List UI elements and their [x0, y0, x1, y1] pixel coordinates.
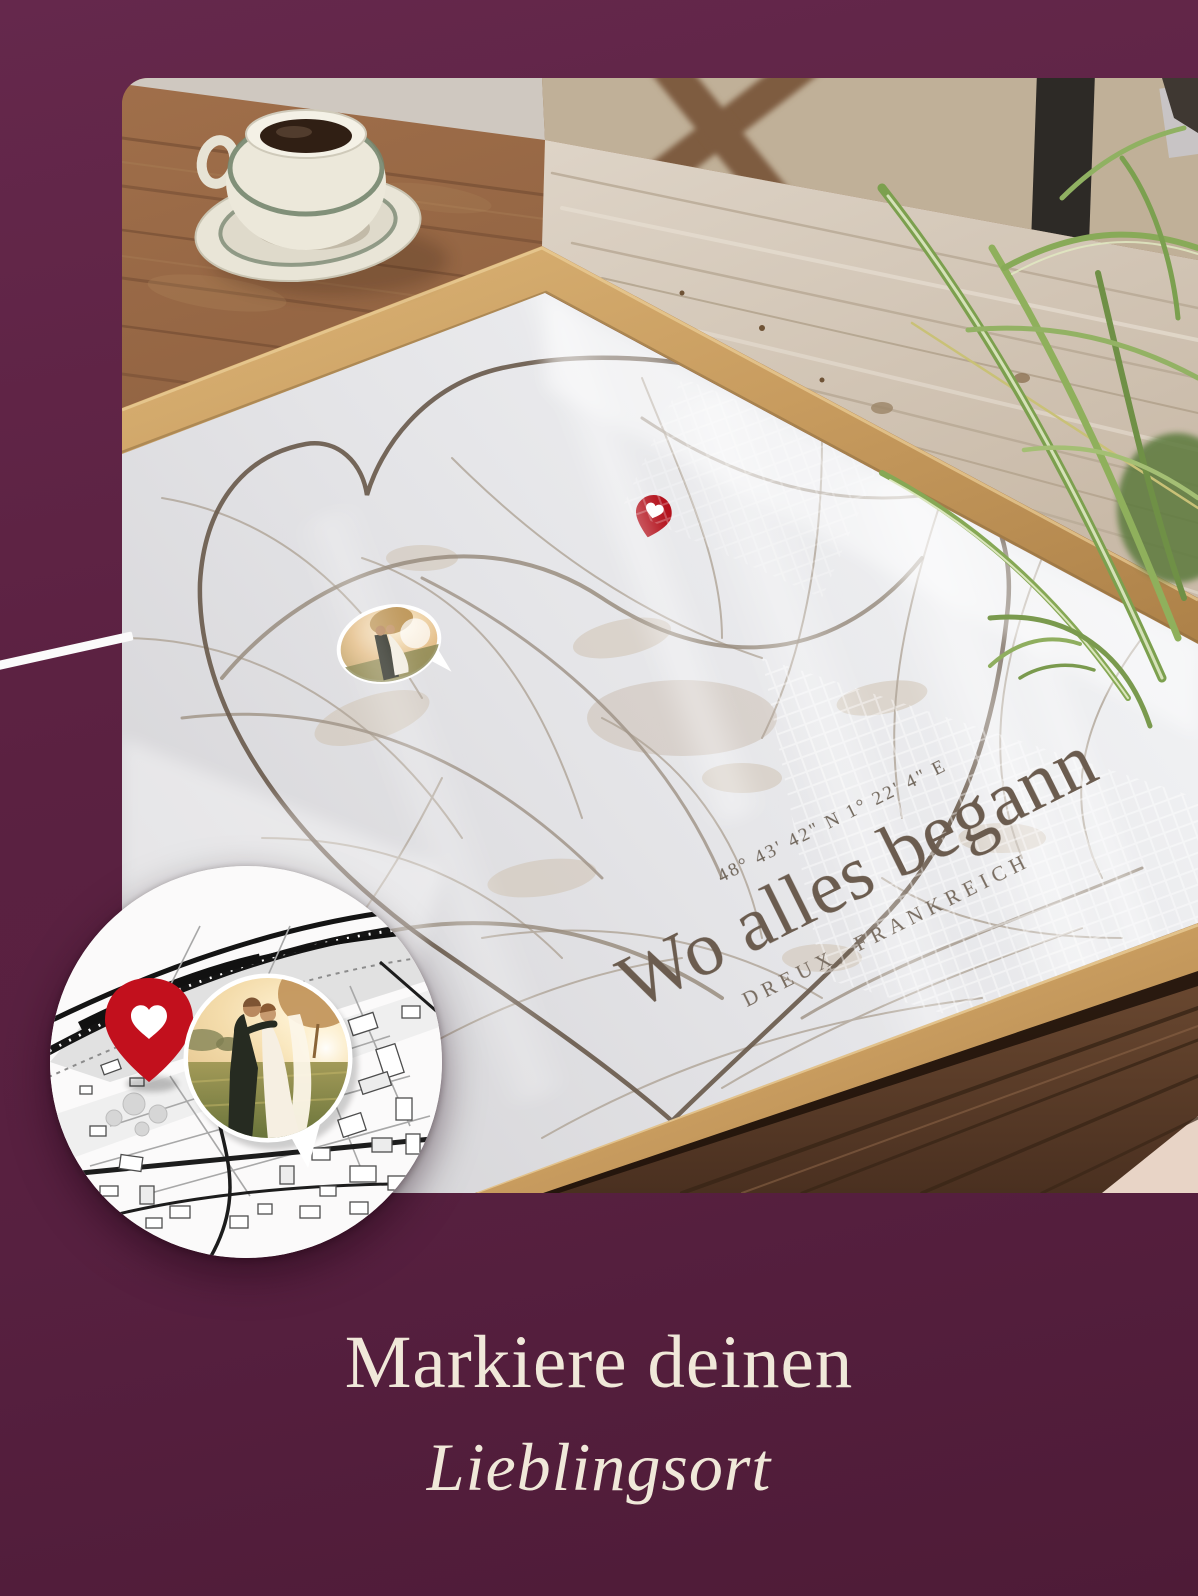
caption: Markiere deinen Lieblingsort: [0, 1320, 1198, 1507]
caption-line2: Lieblingsort: [0, 1428, 1198, 1507]
badge-map: [50, 866, 442, 1258]
map-zoom-badge: [50, 866, 442, 1258]
black-chair-leg: [1031, 78, 1095, 248]
edge-stripe: [0, 631, 134, 671]
page: 48° 43' 42" N 1° 22' 4" E Wo alles began…: [0, 0, 1198, 1596]
caption-line1: Markiere deinen: [0, 1320, 1198, 1406]
